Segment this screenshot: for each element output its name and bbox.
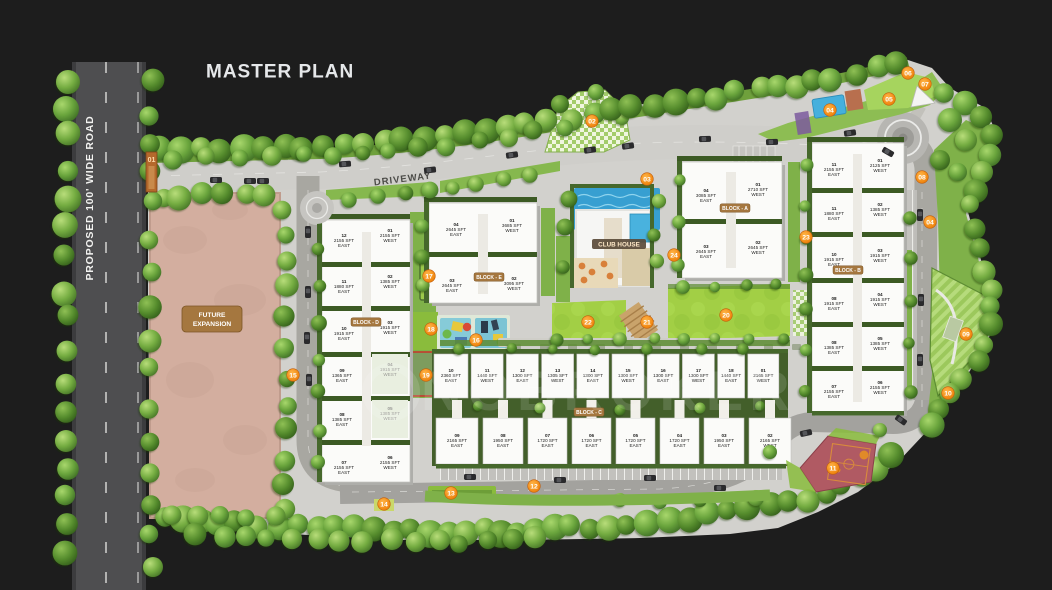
svg-text:16: 16 bbox=[472, 337, 480, 344]
svg-text:11: 11 bbox=[829, 465, 836, 472]
svg-text:17: 17 bbox=[425, 273, 433, 280]
svg-text:06: 06 bbox=[904, 70, 912, 77]
svg-text:09: 09 bbox=[962, 331, 970, 338]
svg-text:07: 07 bbox=[921, 81, 929, 88]
svg-text:01: 01 bbox=[148, 157, 156, 164]
svg-text:18: 18 bbox=[427, 326, 435, 333]
svg-text:04: 04 bbox=[826, 107, 834, 114]
svg-text:21: 21 bbox=[643, 319, 651, 326]
svg-text:BLOCK - D: BLOCK - D bbox=[353, 320, 379, 326]
svg-text:PROPOSED 100' WIDE ROAD: PROPOSED 100' WIDE ROAD bbox=[84, 115, 96, 280]
svg-text:EXPANSION: EXPANSION bbox=[193, 321, 232, 328]
svg-text:NOBROKER: NOBROKER bbox=[421, 359, 796, 422]
svg-text:04: 04 bbox=[926, 219, 934, 226]
svg-text:20: 20 bbox=[722, 312, 730, 319]
svg-text:02: 02 bbox=[588, 118, 596, 125]
svg-text:13: 13 bbox=[447, 490, 455, 497]
svg-text:14: 14 bbox=[380, 501, 388, 508]
svg-text:19: 19 bbox=[422, 372, 430, 379]
svg-text:15: 15 bbox=[289, 372, 297, 379]
svg-text:FUTURE: FUTURE bbox=[199, 312, 226, 319]
svg-text:24: 24 bbox=[670, 252, 678, 259]
svg-text:MASTER PLAN: MASTER PLAN bbox=[206, 62, 354, 83]
svg-text:10: 10 bbox=[944, 390, 952, 397]
svg-text:08: 08 bbox=[918, 174, 926, 181]
svg-text:BLOCK - A: BLOCK - A bbox=[722, 206, 748, 212]
svg-text:BLOCK - E: BLOCK - E bbox=[476, 275, 502, 281]
svg-text:23: 23 bbox=[802, 234, 810, 241]
svg-text:03: 03 bbox=[643, 176, 651, 183]
svg-text:CLUB HOUSE: CLUB HOUSE bbox=[598, 242, 640, 249]
svg-text:22: 22 bbox=[584, 319, 592, 326]
svg-text:BLOCK - B: BLOCK - B bbox=[835, 268, 861, 274]
svg-text:12: 12 bbox=[530, 483, 538, 490]
svg-text:05: 05 bbox=[885, 96, 893, 103]
